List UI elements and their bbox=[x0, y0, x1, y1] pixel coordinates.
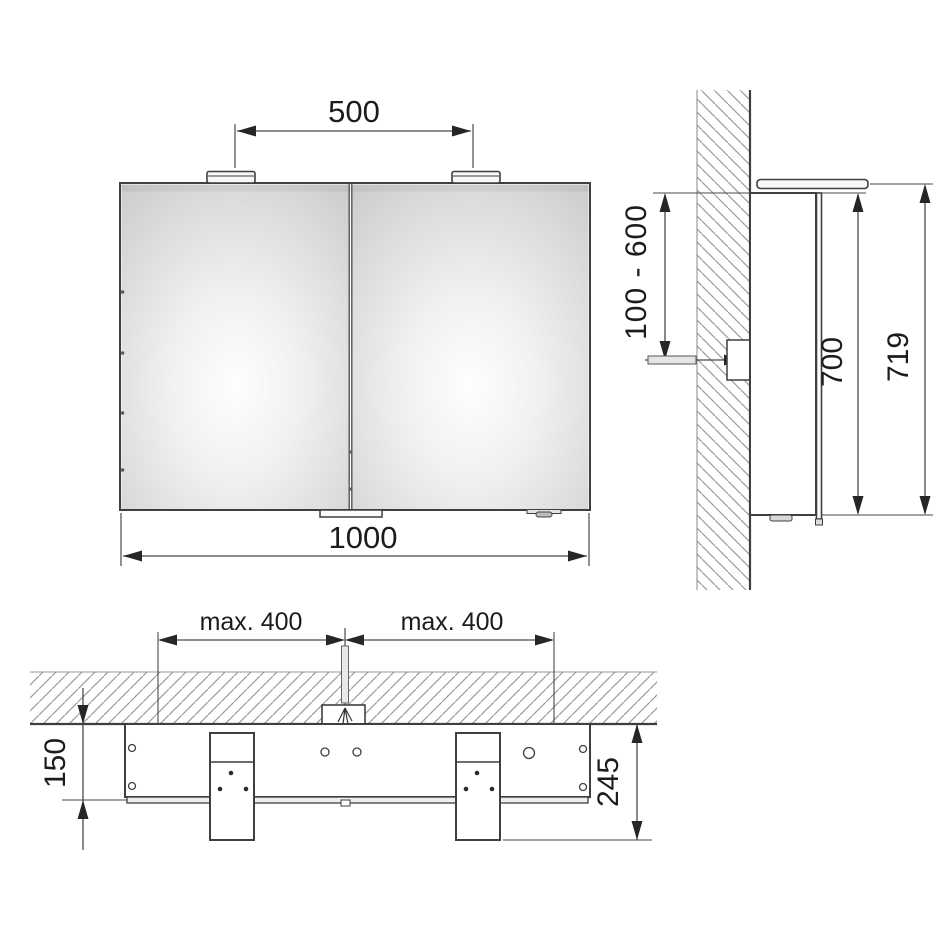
arrowhead bbox=[535, 635, 554, 646]
arrowhead bbox=[345, 635, 364, 646]
arrowhead bbox=[853, 193, 864, 212]
arrowhead bbox=[78, 800, 89, 819]
bottom-clip-side bbox=[770, 515, 792, 521]
arrowhead bbox=[568, 551, 587, 562]
arrowhead bbox=[452, 126, 471, 137]
left-mirror-door bbox=[122, 185, 349, 510]
dim-label-500: 500 bbox=[328, 94, 380, 129]
dim-label-150: 150 bbox=[39, 738, 72, 788]
arrowhead bbox=[237, 126, 256, 137]
arrowhead bbox=[920, 184, 931, 203]
side-view: 100 - 600 700 719 bbox=[620, 90, 933, 590]
dim-label-max400-right: max. 400 bbox=[401, 608, 504, 636]
technical-drawing: 500 1000 100 - 600 bbox=[0, 0, 950, 950]
right-light-fixture-front bbox=[452, 172, 500, 184]
arrowhead bbox=[123, 551, 142, 562]
dim-label-245: 245 bbox=[592, 757, 625, 807]
dimension-light-spacing: 500 bbox=[235, 94, 473, 168]
dimension-overall-width: 1000 bbox=[121, 513, 589, 566]
dim-label-100-600: 100 - 600 bbox=[620, 204, 653, 340]
mirror-top-shadow bbox=[122, 185, 589, 192]
mirror-doors-edge-top bbox=[127, 797, 588, 803]
door-gap-notch bbox=[341, 800, 350, 806]
dim-label-700: 700 bbox=[816, 337, 849, 387]
dim-label-1000: 1000 bbox=[329, 520, 398, 555]
arrowhead bbox=[326, 635, 345, 646]
right-mirror-door bbox=[352, 185, 589, 510]
arrowhead bbox=[920, 496, 931, 515]
front-view: 500 1000 bbox=[120, 94, 590, 566]
arrowhead bbox=[158, 635, 177, 646]
mains-cable-side bbox=[645, 355, 740, 366]
dim-label-max400-left: max. 400 bbox=[200, 608, 303, 636]
dimension-cabinet-height: 700 bbox=[816, 193, 866, 515]
bottom-handle-strip bbox=[320, 510, 382, 517]
arrowhead bbox=[632, 821, 643, 840]
cabinet-body-top bbox=[125, 724, 590, 797]
dim-label-719: 719 bbox=[882, 332, 915, 382]
arrowhead bbox=[632, 724, 643, 743]
cabinet-body-side bbox=[750, 193, 816, 515]
bottom-right-clip bbox=[527, 510, 561, 518]
right-light-housing-top bbox=[456, 733, 500, 840]
drawing-canvas: 500 1000 100 - 600 bbox=[0, 0, 950, 950]
left-light-housing-top bbox=[210, 733, 254, 840]
junction-box-side bbox=[727, 340, 750, 380]
arrowhead bbox=[853, 496, 864, 515]
left-light-fixture-front bbox=[207, 172, 255, 184]
top-view: max. 400 max. 400 150 245 bbox=[30, 608, 657, 850]
light-fixture-side bbox=[757, 180, 868, 189]
arrowhead bbox=[660, 193, 671, 212]
door-foot-detail bbox=[816, 519, 823, 525]
